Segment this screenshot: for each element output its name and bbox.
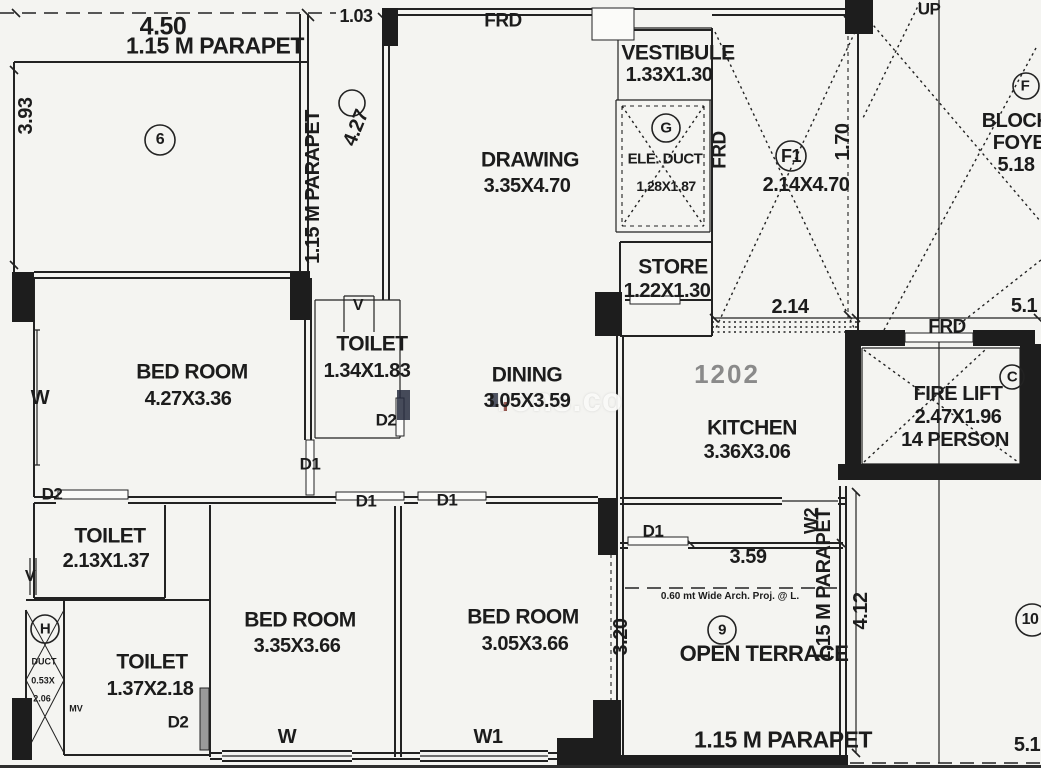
dim-label-bed2: 3.35X3.66 (254, 636, 341, 656)
dim-2-14: 2.14 (772, 297, 809, 317)
door-label-d1-bed3: D1 (437, 492, 458, 509)
door-label-d1-terrace: D1 (643, 523, 664, 540)
ref-f1-lift: F1 (781, 147, 801, 165)
door-label-frd-vestibule: FRD (711, 131, 730, 169)
dim-label-kitchen: 3.36X3.06 (704, 442, 791, 462)
vent-label-v-toilet2: V (25, 569, 35, 585)
unit-number: 1202 (694, 361, 760, 387)
dim-4-12: 4.12 (851, 593, 871, 630)
door-label-d2-toilet1: D2 (376, 412, 397, 429)
room-label-bed2: BED ROOM (244, 610, 356, 631)
dim-5-1-bottom: 5.1 (1014, 735, 1040, 755)
dim-label-bed1: 4.27X3.36 (145, 389, 232, 409)
parapet-label-left-vert: 1.15 M PARAPET (303, 110, 323, 264)
ref-f: F (1021, 79, 1030, 94)
dim-5-1-right: 5.1 (1011, 296, 1037, 316)
duct-dim-b: 2.06 (33, 695, 51, 704)
door-label-frd-top: FRD (484, 12, 522, 31)
door-label-d1-bed1: D1 (300, 456, 321, 473)
ref-c: C (1007, 370, 1017, 385)
door-label-d2-toilet3: D2 (168, 714, 189, 731)
stair-hatch (712, 322, 858, 332)
dim-label-store: 1.22X1.30 (624, 281, 711, 301)
dim-label-fire-lift: 2.47X1.96 (915, 407, 1002, 427)
capacity-label-fire-lift: 14 PERSON (901, 430, 1009, 450)
dim-label-f1-lift: 2.14X4.70 (763, 175, 850, 195)
dim-5-18: 5.18 (998, 155, 1035, 175)
door-label-d2-toilet2: D2 (42, 486, 63, 503)
dim-label-ele-duct: 1.28X1.87 (636, 179, 695, 193)
room-label-toilet2: TOILET (74, 526, 145, 547)
window-label-w-bed2: W (278, 727, 296, 747)
dim-label-drawing: 3.35X4.70 (484, 176, 571, 196)
door-label-frd-firelift: FRD (928, 318, 966, 337)
room-label-ele-duct: ELE. DUCT (628, 152, 703, 167)
ref-9: 9 (718, 623, 726, 638)
dim-label-toilet2: 2.13X1.37 (63, 551, 150, 571)
dim-3-93: 3.93 (16, 98, 36, 135)
duct-label: DUCT (32, 658, 57, 667)
room-label-bed3: BED ROOM (467, 607, 579, 628)
dim-3-59: 3.59 (730, 547, 767, 567)
dim-1-70: 1.70 (833, 124, 853, 161)
parapet-label-terrace-vert: 1.15 M PARAPET (814, 508, 834, 662)
vent-label-v-toilet1: V (353, 298, 363, 314)
parapet-label-bottom: 1.15 M PARAPET (694, 729, 872, 752)
dim-3-20: 3.20 (611, 619, 631, 656)
door-label-d1-bed2: D1 (356, 493, 377, 510)
room-label-dining: DINING (492, 365, 563, 386)
arch-projection-note: 0.60 mt Wide Arch. Proj. @ L. (661, 592, 799, 602)
room-label-toilet1: TOILET (336, 334, 407, 355)
room-label-kitchen: KITCHEN (707, 418, 797, 439)
window-label-w1-bed3: W1 (474, 727, 503, 747)
room-label-store: STORE (638, 257, 707, 278)
window-label-w-bed1: W (31, 388, 49, 408)
ref-10: 10 (1022, 612, 1039, 628)
ref-g: G (660, 121, 671, 136)
dim-label-vestibule: 1.33X1.30 (626, 65, 713, 85)
dim-label-dining: 3.05X3.59 (484, 391, 571, 411)
room-label-fire-lift: FIRE LIFT (914, 384, 1003, 404)
dim-label-bed3: 3.05X3.66 (482, 634, 569, 654)
parapet-label-top: 1.15 M PARAPET (126, 35, 304, 58)
watermark-mark (397, 390, 410, 420)
room-label-toilet3: TOILET (116, 652, 187, 673)
dim-1-03: 1.03 (339, 7, 372, 25)
duct-dim-a: 0.53X (31, 677, 55, 686)
foyer-label-foyer: FOYER (993, 133, 1041, 153)
dim-label-toilet3: 1.37X2.18 (107, 679, 194, 699)
dim-label-toilet1: 1.34X1.83 (324, 361, 411, 381)
ref-h: H (40, 622, 50, 637)
foyer-label-block: BLOCK (982, 111, 1041, 131)
room-label-vestibule: VESTIBULE (621, 43, 734, 64)
vent-label-mv: MV (69, 705, 83, 714)
room-label-bed1: BED ROOM (136, 362, 248, 383)
floor-plan: rons.co 4.50 1.15 M PARAPET 1.03 3.93 6 … (0, 0, 1041, 768)
room-label-drawing: DRAWING (481, 150, 579, 171)
ref-6: 6 (156, 132, 164, 148)
stair-up-label: UP (918, 1, 941, 18)
